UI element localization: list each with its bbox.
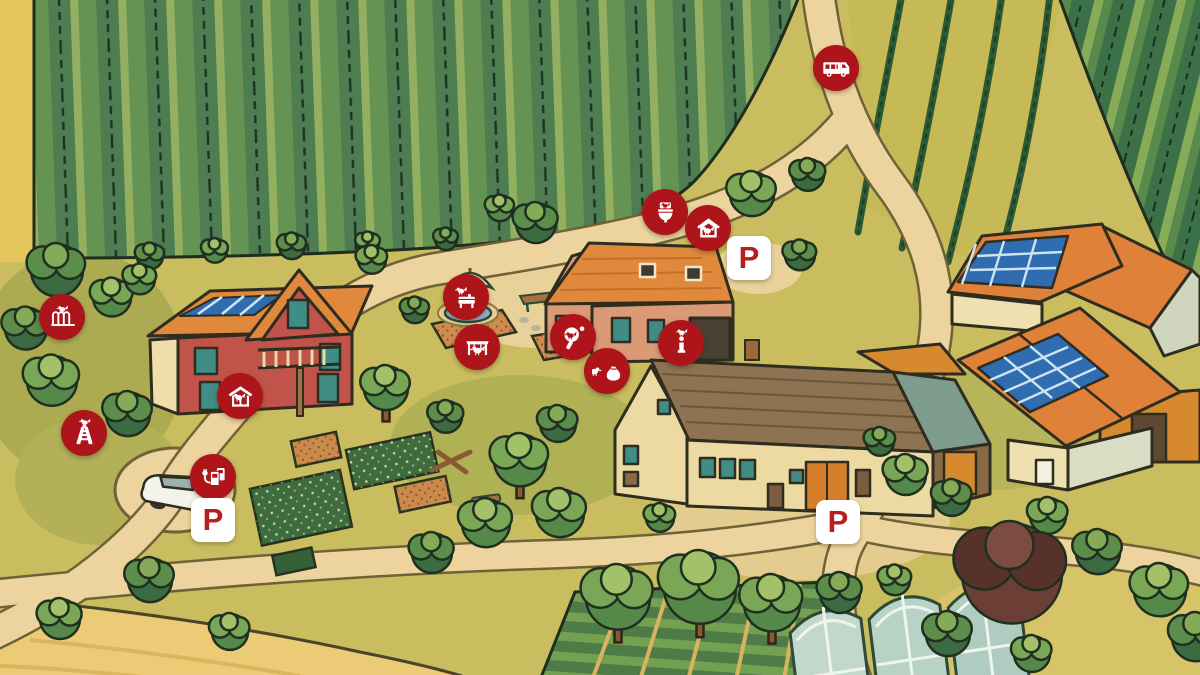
farm-map: PPP <box>0 0 1200 675</box>
parking-sign[interactable]: P <box>191 498 235 542</box>
parking-sign[interactable]: P <box>727 236 771 280</box>
table-tennis-icon <box>558 322 589 353</box>
nesting-house-marker[interactable] <box>217 373 263 419</box>
camper-icon <box>821 53 852 84</box>
camper-parking-marker[interactable] <box>813 45 859 91</box>
chicken-feeding-marker[interactable] <box>584 348 630 394</box>
chicken-run-marker[interactable] <box>39 294 85 340</box>
ev-charger-icon <box>198 462 229 493</box>
info-bird-icon <box>666 328 697 359</box>
parking-sign-label: P <box>203 504 224 535</box>
climbing-ladder-marker[interactable] <box>61 410 107 456</box>
chicken-shelter-marker[interactable] <box>454 324 500 370</box>
table-tennis-marker[interactable] <box>550 314 596 360</box>
parking-sign-label: P <box>828 506 849 537</box>
house-rooster-icon <box>693 213 724 244</box>
farm-shop-marker[interactable] <box>685 205 731 251</box>
bbq-feed-box-marker[interactable] <box>443 274 489 320</box>
birdhouse-icon <box>225 381 256 412</box>
parking-sign-label: P <box>739 242 760 273</box>
shelter-bird-icon <box>462 332 493 363</box>
ev-charging-marker[interactable] <box>190 454 236 500</box>
bird-on-box-icon <box>451 282 482 313</box>
bird-sack-icon <box>592 356 623 387</box>
info-point-marker[interactable] <box>658 320 704 366</box>
parking-sign[interactable]: P <box>816 500 860 544</box>
toilet-marker[interactable] <box>642 189 688 235</box>
toilet-icon <box>650 197 681 228</box>
ladder-bird-icon <box>69 418 100 449</box>
farm-illustration <box>0 0 1200 675</box>
fence-bird-icon <box>47 302 78 333</box>
